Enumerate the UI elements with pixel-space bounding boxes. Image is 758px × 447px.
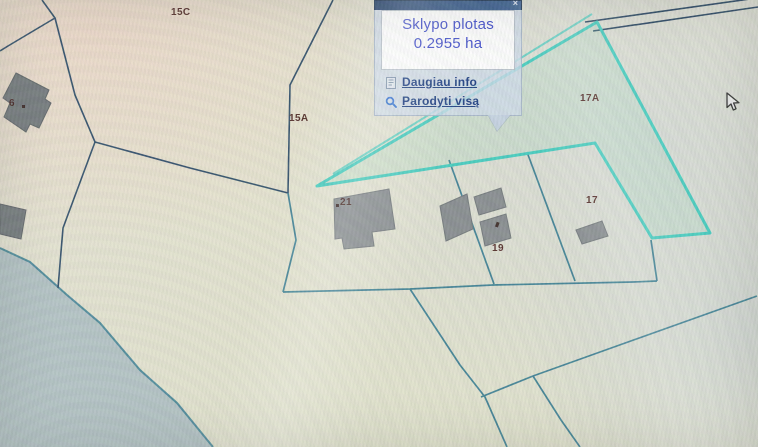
road-lines [585,0,758,31]
building-17 [576,221,608,244]
water-area [0,248,213,447]
popup-tail [488,115,510,131]
parcel-label-17: 17 [586,195,598,206]
parcel-label-15a: 15A [289,113,309,124]
building-b [474,188,506,215]
show-all-label[interactable]: Parodyti visą [402,94,479,108]
building-c [480,214,511,246]
parcel-boundaries-navy [0,0,333,288]
parcel-label-17a: 17A [580,93,600,104]
arrow-cursor-icon [726,92,743,113]
show-all-link[interactable]: Parodyti visą [385,94,521,108]
magnifier-icon [385,95,397,107]
parcel-area-card: Sklypo plotas 0.2955 ha [381,10,515,70]
building-footprints [334,188,608,249]
map-viewer-screen: 15C 15A 17A 21 19 17 6 × Sklypo plotas 0… [0,0,758,447]
parcel-area-value: 0.2955 ha [382,34,514,53]
parcel-label-15c: 15C [171,7,191,18]
parcel-area-label: Sklypo plotas [382,15,514,34]
building-footprints-dark [0,73,51,239]
identify-popup: × Sklypo plotas 0.2955 ha Daugiau info [374,0,522,116]
popup-body: Sklypo plotas 0.2955 ha Daugiau info [374,10,522,116]
close-icon[interactable]: × [513,0,518,8]
more-info-label[interactable]: Daugiau info [402,75,477,89]
building-a [440,194,473,241]
document-icon [385,76,397,88]
parcel-label-6: 6 [9,98,15,109]
more-info-link[interactable]: Daugiau info [385,75,521,89]
parcel-label-19: 19 [492,243,504,254]
building-sw [0,204,26,239]
popup-title-bar[interactable]: × [374,0,522,10]
parcel-label-21: 21 [340,197,352,208]
